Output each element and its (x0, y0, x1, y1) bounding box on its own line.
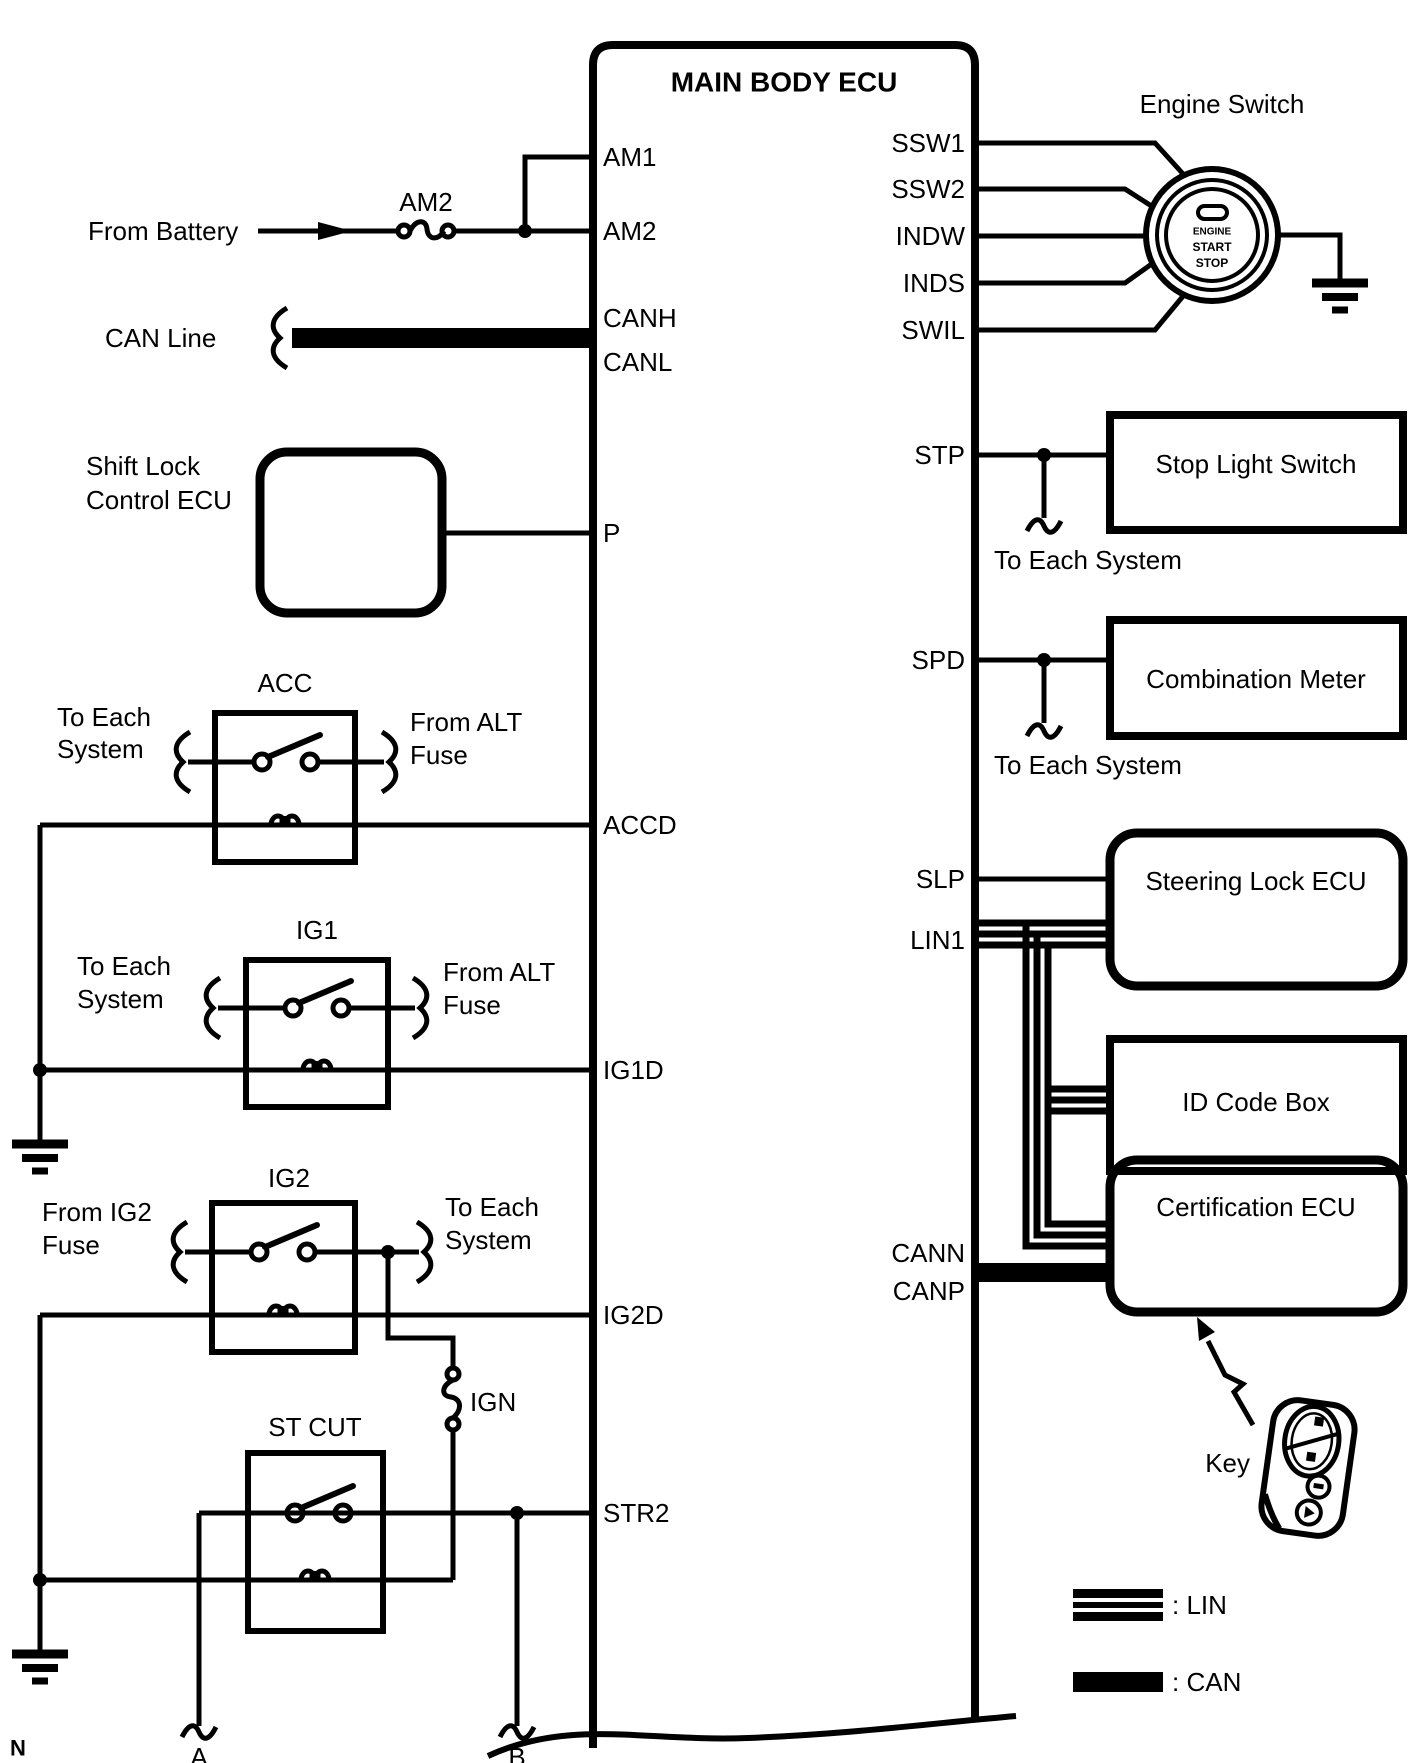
junction-dot (33, 1573, 47, 1587)
ig2-left-label-1: From IG2 (42, 1197, 152, 1227)
ig1-right-label-1: From ALT (443, 957, 555, 987)
wireless-arrow-icon (1208, 1341, 1253, 1425)
certification-ecu-label: Certification ECU (1156, 1192, 1355, 1222)
flow-arrow-icon (318, 222, 352, 240)
switch-contact-icon (285, 981, 351, 1016)
pin-canl: CANL (603, 347, 672, 377)
engine-switch: Engine Switch ENGINE START STOP (975, 89, 1368, 330)
connector-a-label: A (190, 1742, 208, 1763)
continuation-brace-icon (417, 1222, 431, 1282)
ig2-relay-name: IG2 (268, 1163, 310, 1193)
legend-can-swatch (1073, 1672, 1163, 1692)
wiring-diagram: MAIN BODY ECU AM1 AM2 CANH CANL P ACCD I… (0, 0, 1424, 1763)
ig2-left-label-2: Fuse (42, 1230, 100, 1260)
pin-accd: ACCD (603, 810, 677, 840)
pin-ig1d: IG1D (603, 1055, 664, 1085)
acc-relay: ACC To Each System From ALT Fuse (40, 668, 593, 862)
connector-squiggle-icon (1027, 520, 1061, 532)
combination-meter-label: Combination Meter (1146, 664, 1366, 694)
pin-ssw1: SSW1 (891, 128, 965, 158)
shift-lock-control-ecu: Shift Lock Control ECU (86, 451, 593, 613)
ig1-relay-name: IG1 (296, 915, 338, 945)
ig1-left-label-1: To Each (77, 951, 171, 981)
stp-note: To Each System (994, 545, 1182, 575)
junction-dot (33, 1063, 47, 1077)
shift-lock-label-2: Control ECU (86, 485, 232, 515)
certification-ecu-box (1110, 1160, 1403, 1312)
switch-contact-icon (254, 735, 320, 770)
stop-light-switch-label: Stop Light Switch (1156, 449, 1357, 479)
acc-relay-name: ACC (258, 668, 313, 698)
main-body-ecu: MAIN BODY ECU AM1 AM2 CANH CANL P ACCD I… (488, 45, 1016, 1756)
steering-lock-ecu-box (1110, 833, 1403, 986)
engine-start-stop-button: ENGINE START STOP (1146, 169, 1278, 301)
ig2-relay-box (212, 1203, 355, 1352)
stop-light-switch: Stop Light Switch To Each System (975, 415, 1403, 575)
switch-contact-icon (251, 1225, 317, 1260)
legend-can-label: : CAN (1172, 1667, 1241, 1697)
acc-right-label-1: From ALT (410, 707, 522, 737)
id-code-box: ID Code Box (1110, 1039, 1403, 1171)
acc-left-label-1: To Each (57, 702, 151, 732)
ign-fuse-label: IGN (470, 1387, 516, 1417)
st-cut-relay-name: ST CUT (268, 1412, 362, 1442)
ig1-relay: IG1 To Each System From ALT Fuse (40, 915, 593, 1107)
can-line-label: CAN Line (105, 323, 216, 353)
connector-b-label: B (508, 1742, 525, 1763)
button-text-1: ENGINE (1193, 227, 1232, 238)
ecu-bottom-wave (488, 1716, 1016, 1756)
am2-fuse-label: AM2 (399, 187, 452, 217)
pin-inds: INDS (903, 268, 965, 298)
continuation-brace-icon (173, 1222, 187, 1282)
left-ground-bus-1 (12, 825, 68, 1171)
can-bus-band (292, 328, 593, 348)
acc-relay-box (215, 713, 355, 862)
can-line: CAN Line (105, 308, 593, 368)
st-cut-relay: ST CUT (40, 1412, 593, 1631)
shift-lock-label-1: Shift Lock (86, 451, 201, 481)
main-body-ecu-box (593, 45, 975, 1748)
acc-left-label-2: System (57, 734, 144, 764)
button-text-3: STOP (1196, 256, 1228, 270)
pin-ig2d: IG2D (603, 1300, 664, 1330)
can-bus-band (975, 1263, 1110, 1282)
continuation-brace-icon (273, 308, 287, 368)
shift-lock-box (260, 452, 442, 613)
indicator-slot-icon (1198, 206, 1227, 219)
pin-am1: AM1 (603, 142, 656, 172)
connector-squiggle-icon (500, 1726, 534, 1738)
am2-fuse-icon (398, 222, 454, 238)
key-fob-icon (1258, 1397, 1358, 1539)
pin-lin1: LIN1 (910, 925, 965, 955)
acc-right-label-2: Fuse (410, 740, 468, 770)
pin-canh: CANH (603, 303, 677, 333)
lin-bus (975, 923, 1110, 1246)
battery-feed: From Battery AM2 (88, 157, 593, 246)
spd-note: To Each System (994, 750, 1182, 780)
combination-meter: Combination Meter To Each System (975, 620, 1403, 780)
connector-squiggle-icon (1027, 725, 1061, 737)
pin-swil: SWIL (901, 315, 965, 345)
pin-stp: STP (914, 440, 965, 470)
pin-indw: INDW (896, 221, 966, 251)
continuation-brace-icon (206, 978, 220, 1038)
connector-squiggle-icon (182, 1726, 216, 1738)
legend: : LIN : CAN (1073, 1589, 1241, 1697)
id-code-box-label: ID Code Box (1182, 1087, 1329, 1117)
connector-a: A (182, 1513, 216, 1763)
ig1-right-label-2: Fuse (443, 990, 501, 1020)
left-ground-bus-2 (12, 1315, 68, 1681)
ig1-left-label-2: System (77, 984, 164, 1014)
footer-note: N (10, 1736, 26, 1761)
legend-lin-label: : LIN (1172, 1590, 1227, 1620)
ign-fuse-branch: IGN (388, 1252, 516, 1580)
pin-p: P (603, 518, 620, 548)
ground-icon (12, 1144, 68, 1171)
from-battery-label: From Battery (88, 216, 238, 246)
pin-ssw2: SSW2 (891, 174, 965, 204)
continuation-brace-icon (176, 732, 190, 792)
legend-lin-swatch (1073, 1589, 1163, 1621)
wireless-link (1197, 1317, 1253, 1425)
switch-contact-icon (287, 1486, 353, 1521)
engine-switch-label: Engine Switch (1140, 89, 1305, 119)
ecu-title: MAIN BODY ECU (671, 67, 898, 98)
ig2-right-label-2: System (445, 1225, 532, 1255)
ig2-relay: IG2 From IG2 Fuse To Each System (40, 1163, 593, 1352)
steering-lock-ecu-label: Steering Lock ECU (1145, 866, 1366, 896)
pin-canp: CANP (893, 1276, 965, 1306)
ign-fuse-icon (444, 1368, 460, 1430)
continuation-brace-icon (413, 978, 427, 1038)
key-label: Key (1205, 1448, 1250, 1478)
pin-cann: CANN (891, 1238, 965, 1268)
ground-icon (1312, 283, 1368, 310)
button-text-2: START (1192, 240, 1232, 254)
connector-b: B (500, 1513, 534, 1763)
key-fob: Key (1205, 1397, 1358, 1539)
pin-str2: STR2 (603, 1498, 669, 1528)
ground-icon (12, 1654, 68, 1681)
ig2-right-label-1: To Each (445, 1192, 539, 1222)
pin-slp: SLP (916, 864, 965, 894)
continuation-brace-icon (382, 732, 396, 792)
pin-spd: SPD (912, 645, 965, 675)
st-cut-relay-box (248, 1453, 383, 1631)
ig1-relay-box (246, 960, 388, 1107)
pin-am2: AM2 (603, 216, 656, 246)
